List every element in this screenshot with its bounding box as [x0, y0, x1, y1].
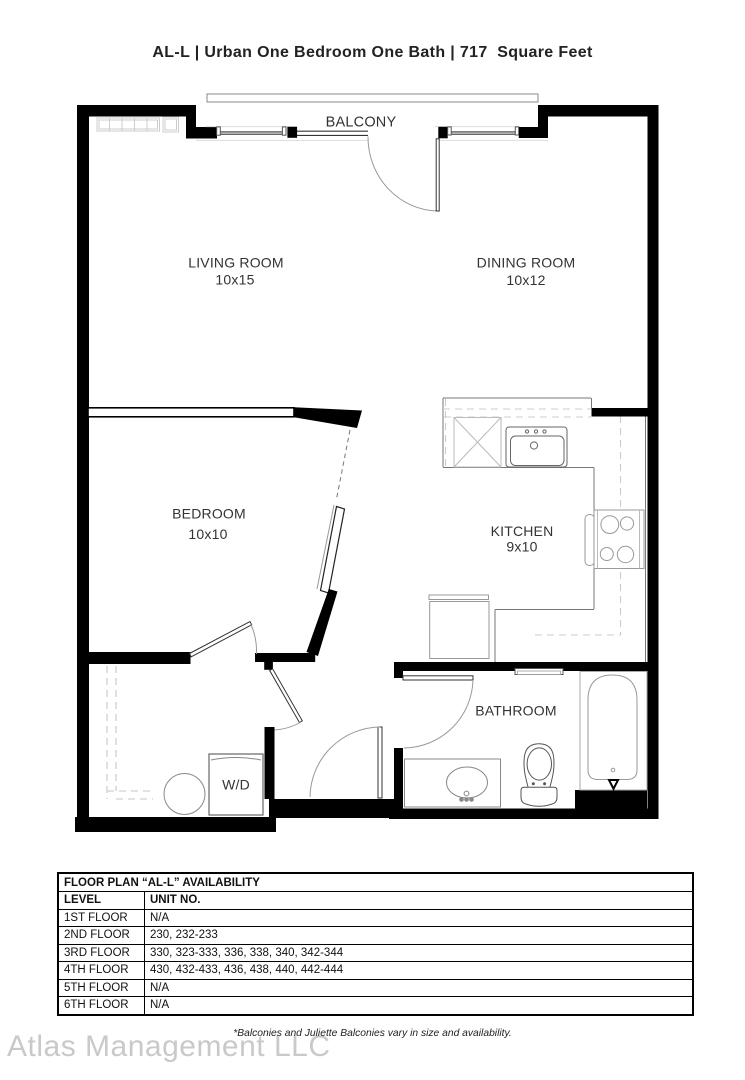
svg-text:9x10: 9x10 — [506, 539, 537, 555]
svg-text:KITCHEN: KITCHEN — [491, 523, 554, 539]
svg-text:BATHROOM: BATHROOM — [475, 703, 556, 719]
svg-text:10x12: 10x12 — [506, 272, 545, 288]
svg-text:10x15: 10x15 — [215, 272, 254, 288]
svg-text:W/D: W/D — [222, 777, 250, 793]
svg-text:BALCONY: BALCONY — [326, 115, 397, 131]
svg-text:LIVING ROOM: LIVING ROOM — [188, 254, 284, 270]
svg-text:10x10: 10x10 — [188, 526, 227, 542]
svg-text:DINING ROOM: DINING ROOM — [477, 254, 576, 270]
svg-text:BEDROOM: BEDROOM — [172, 506, 246, 522]
